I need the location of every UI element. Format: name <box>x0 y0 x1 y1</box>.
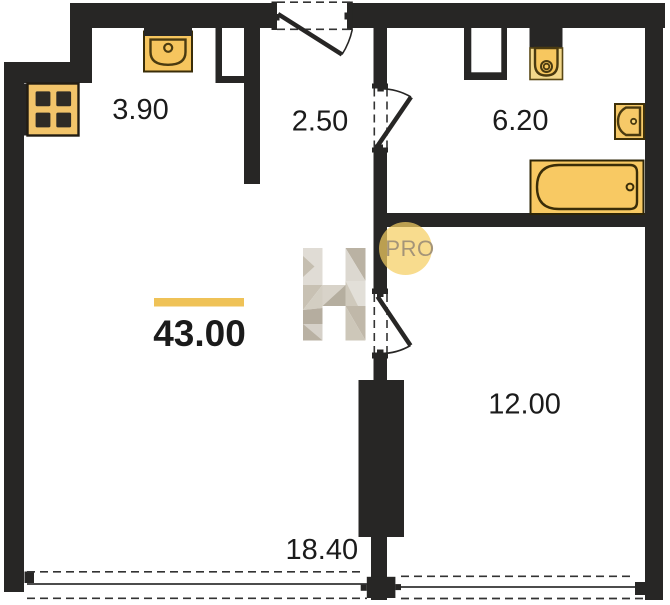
svg-text:2.50: 2.50 <box>292 106 348 138</box>
svg-text:43.00: 43.00 <box>153 313 246 354</box>
svg-text:PRO: PRO <box>385 236 434 261</box>
svg-text:3.90: 3.90 <box>112 94 168 126</box>
svg-text:6.20: 6.20 <box>492 105 548 137</box>
svg-text:12.00: 12.00 <box>488 389 561 421</box>
svg-text:18.40: 18.40 <box>286 534 359 566</box>
